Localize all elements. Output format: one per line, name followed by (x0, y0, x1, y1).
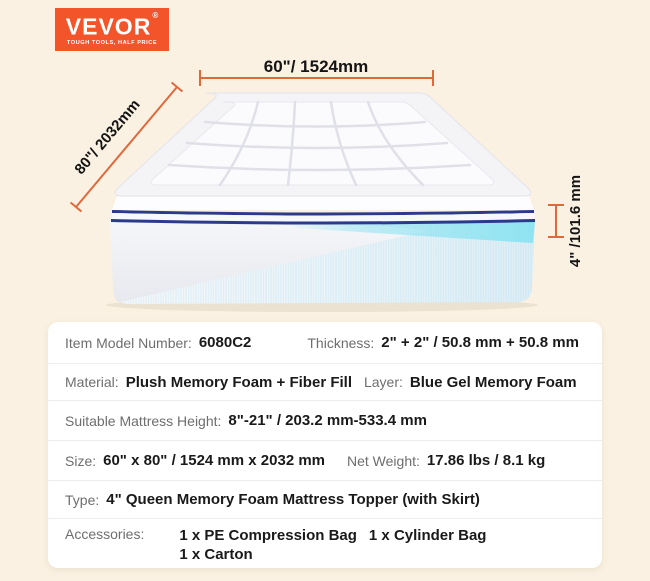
mattress-illustration: 60"/ 1524mm 80"/ 2032mm 4" /101.6 mm (0, 0, 650, 330)
spec-row-accessories: Accessories: 1 x PE Compression Bag 1 x … (48, 519, 602, 568)
spec-row-suitable-height: Suitable Mattress Height: 8"-21" / 203.2… (48, 401, 602, 441)
spec-row-size-weight: Size: 60" x 80" / 1524 mm x 2032 mm Net … (48, 441, 602, 481)
spec-label: Accessories: (65, 526, 144, 542)
spec-value: 2" + 2" / 50.8 mm + 50.8 mm (381, 334, 579, 351)
spec-value: Plush Memory Foam + Fiber Fill (126, 374, 352, 391)
spec-value: 17.86 lbs / 8.1 kg (427, 452, 545, 469)
dimension-height-label: 4" /101.6 mm (567, 175, 584, 267)
spec-label: Size: (65, 453, 96, 469)
spec-row-material-layer: Material: Plush Memory Foam + Fiber Fill… (48, 364, 602, 401)
accessories-values: 1 x PE Compression Bag 1 x Cylinder Bag … (179, 526, 486, 564)
spec-row-model-thickness: Item Model Number: 6080C2 Thickness: 2" … (48, 322, 602, 364)
spec-value: 6080C2 (199, 334, 252, 351)
spec-value: 4" Queen Memory Foam Mattress Topper (wi… (106, 491, 480, 508)
page-background: { "colors": { "background": "#FAF1E2", "… (0, 0, 650, 581)
dimension-height-line (548, 205, 564, 237)
spec-row-type: Type: 4" Queen Memory Foam Mattress Topp… (48, 481, 602, 519)
spec-label: Layer: (364, 374, 403, 390)
spec-label: Item Model Number: (65, 335, 192, 351)
spec-value: 60" x 80" / 1524 mm x 2032 mm (103, 452, 325, 469)
spec-label: Suitable Mattress Height: (65, 413, 221, 429)
dimension-width-label: 60"/ 1524mm (264, 57, 368, 76)
spec-label: Thickness: (307, 335, 374, 351)
spec-label: Material: (65, 374, 119, 390)
spec-value: 1 x Cylinder Bag (369, 526, 487, 545)
spec-value: 8"-21" / 203.2 mm-533.4 mm (228, 412, 427, 429)
spec-label: Net Weight: (347, 453, 420, 469)
topper-side-band (112, 196, 534, 210)
spec-value: 1 x Carton (179, 545, 252, 564)
dimension-depth-label: 80"/ 2032mm (71, 96, 143, 178)
spec-label: Type: (65, 492, 99, 508)
spec-value: 1 x PE Compression Bag (179, 526, 357, 545)
spec-value: Blue Gel Memory Foam (410, 374, 577, 391)
spec-card: Item Model Number: 6080C2 Thickness: 2" … (48, 322, 602, 568)
